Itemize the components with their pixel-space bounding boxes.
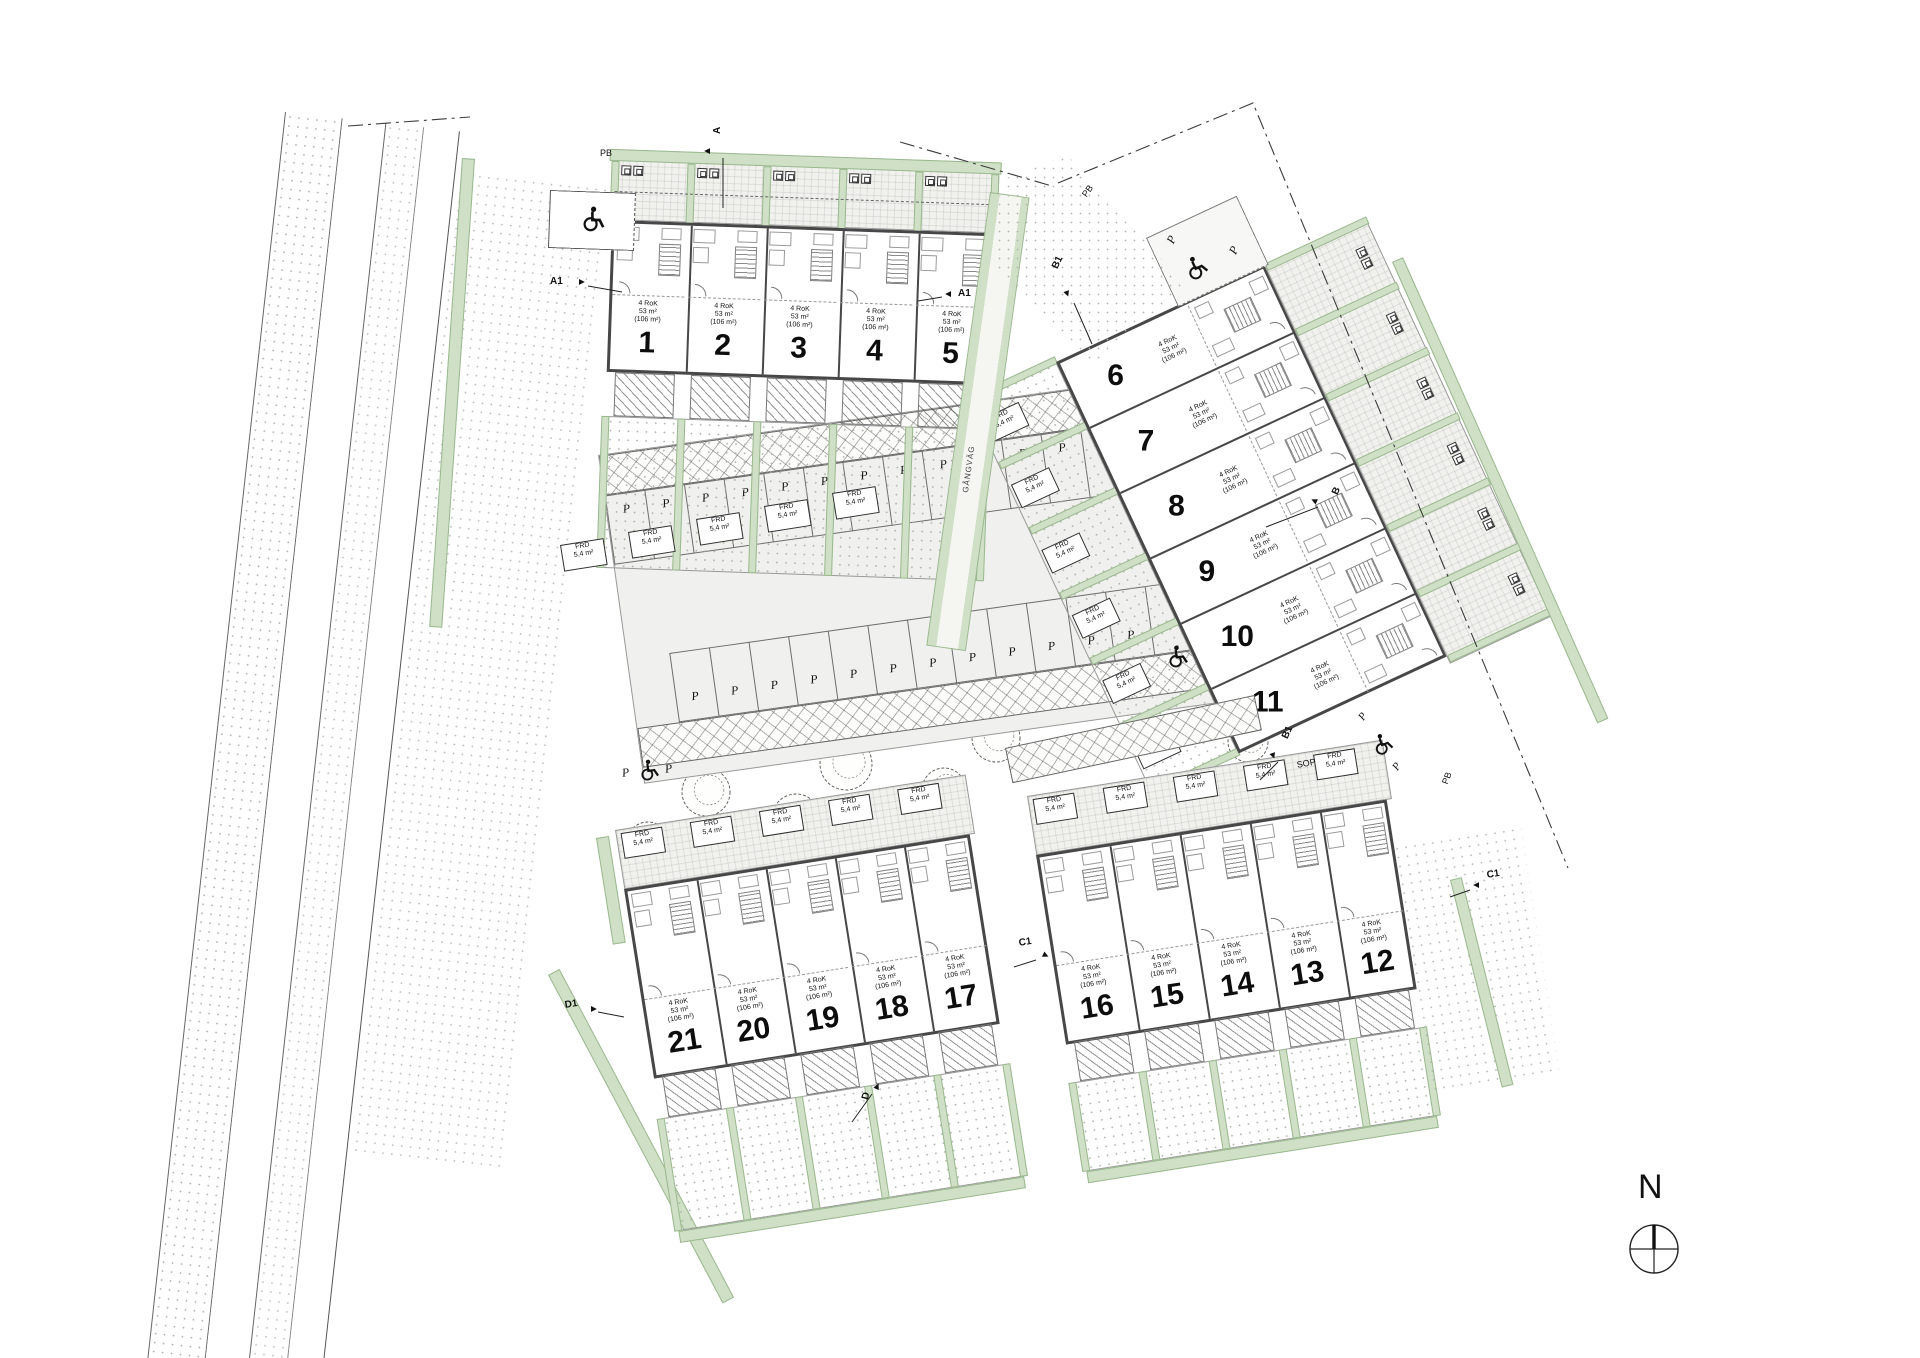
section-marker-leader [852, 1094, 872, 1122]
wheelchair-icon [1372, 731, 1393, 755]
compass-icon [1616, 1168, 1706, 1288]
section-marker-leader [1074, 303, 1092, 344]
section-marker-leader [1260, 762, 1278, 780]
section-marker-leader [1450, 890, 1470, 897]
section-marker-leader [598, 1012, 624, 1017]
property-boundary-line [900, 142, 1052, 186]
wheelchair-icon [1184, 253, 1209, 280]
site-plan-canvas: PPPPPPPPPPPPPPPPPPPPPPPPPPPP4 RoK53 m²(1… [0, 0, 1920, 1358]
property-boundary-line [348, 117, 470, 126]
section-marker-leader [1014, 960, 1036, 967]
wheelchair-icon [640, 759, 658, 781]
wheelchair-icon [1168, 644, 1187, 667]
markers-leader-lines-layer [0, 0, 1920, 1358]
wheelchair-icon [585, 207, 604, 231]
section-marker-leader [918, 297, 942, 301]
property-boundary-line [1058, 103, 1568, 868]
north-arrow: N [1616, 1168, 1706, 1288]
section-marker-leader [588, 286, 622, 292]
section-marker-leader [1266, 507, 1318, 527]
